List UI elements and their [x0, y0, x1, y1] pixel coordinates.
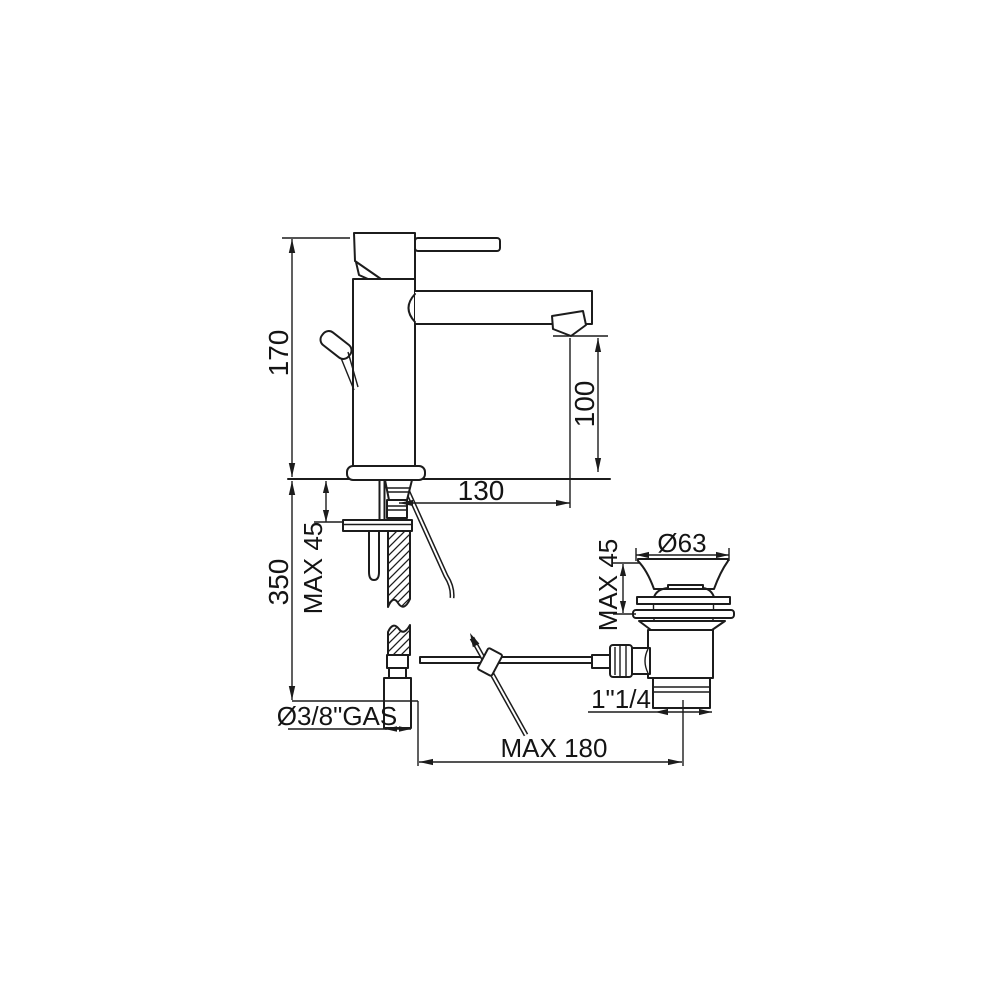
waste-rod-stub	[592, 655, 610, 668]
pull-rod-lower	[369, 531, 379, 580]
dim-label-170: 170	[263, 330, 294, 377]
dim-label-130: 130	[458, 475, 505, 506]
faucet-pull-rod	[404, 483, 452, 598]
dim-label-max180: MAX 180	[501, 733, 608, 763]
dimension-labels: 170 350 MAX 45 130 100 Ø63 MAX 45 1"1/4 …	[263, 330, 707, 763]
supply-shank-upper	[388, 531, 410, 607]
rod-upper	[380, 480, 385, 521]
linkage-rod-diagonal	[470, 633, 526, 735]
shank-neck	[389, 668, 406, 678]
base-plate	[347, 466, 425, 480]
dim-label-100: 100	[569, 381, 600, 428]
spout-aerator	[552, 311, 586, 336]
dim-label-1-1-4: 1"1/4	[591, 684, 651, 714]
handle-lever	[415, 238, 500, 251]
linkage-rod-horizontal	[420, 657, 592, 663]
dim-label-gas: Ø3/8"GAS	[277, 701, 398, 731]
technical-drawing-canvas: 170 350 MAX 45 130 100 Ø63 MAX 45 1"1/4 …	[0, 0, 1000, 1000]
waste-flange	[639, 621, 725, 630]
dim-label-350: 350	[263, 559, 294, 606]
dim-label-d63: Ø63	[657, 528, 706, 558]
mounting-washer	[343, 520, 412, 531]
waste-body	[648, 630, 713, 678]
faucet-body	[353, 279, 415, 466]
popup-knob	[318, 328, 358, 390]
shank-nut	[387, 655, 408, 668]
dim-label-max45-right: MAX 45	[593, 539, 623, 632]
body-tail	[385, 480, 412, 500]
waste-washer-2	[633, 610, 734, 618]
faucet-dimension-diagram: 170 350 MAX 45 130 100 Ø63 MAX 45 1"1/4 …	[0, 0, 1000, 1000]
waste-side-nut	[610, 645, 632, 677]
waste-washer-1	[637, 597, 730, 604]
dim-label-max45-left: MAX 45	[298, 522, 328, 615]
faucet-underdeck	[343, 480, 412, 728]
supply-shank-lower	[388, 625, 410, 655]
handle-cap	[354, 233, 415, 279]
faucet-outline	[318, 233, 592, 480]
waste-tailpiece	[653, 678, 710, 708]
